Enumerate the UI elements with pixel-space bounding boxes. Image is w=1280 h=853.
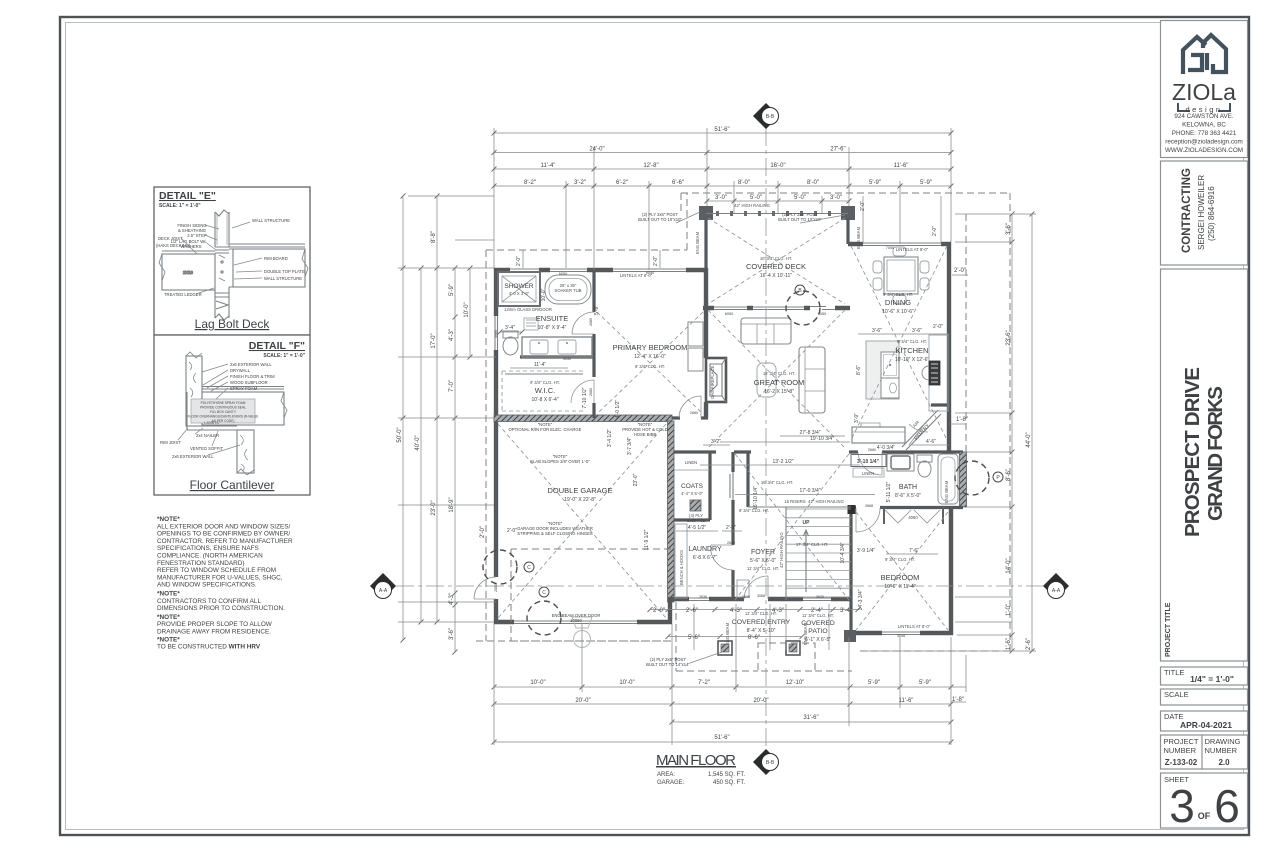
svg-text:4060: 4060 [908, 515, 918, 520]
svg-text:10'-0": 10'-0" [530, 680, 545, 686]
svg-text:(HAKS DECKING): (HAKS DECKING) [156, 243, 191, 248]
svg-text:GARAGE:: GARAGE: [657, 780, 685, 786]
svg-text:2630: 2630 [727, 541, 735, 545]
svg-text:NUMBER: NUMBER [1205, 746, 1238, 755]
svg-text:A-A: A-A [379, 588, 388, 594]
svg-text:DIMENSIONS PRIOR TO CONSTRUCTI: DIMENSIONS PRIOR TO CONSTRUCTION. [157, 605, 285, 612]
svg-text:5'-9": 5'-9" [868, 680, 880, 686]
svg-text:2680: 2680 [589, 318, 593, 326]
svg-text:12mm GLASS DR/DOOR: 12mm GLASS DR/DOOR [504, 307, 552, 312]
svg-text:DRAWING: DRAWING [1205, 737, 1241, 746]
svg-text:FILL BOX CAVITY: FILL BOX CAVITY [210, 410, 237, 414]
svg-text:10'-6" X 11'-4": 10'-6" X 11'-4" [884, 584, 915, 590]
svg-text:LAUNDRY: LAUNDRY [688, 546, 722, 553]
svg-text:3046: 3046 [897, 634, 905, 638]
svg-text:DOUBLE TOP PLATE: DOUBLE TOP PLATE [264, 269, 305, 274]
svg-text:NUMBER: NUMBER [1164, 746, 1197, 755]
svg-text:SPECIFICATIONS, ENSURE NAFS: SPECIFICATIONS, ENSURE NAFS [157, 545, 259, 552]
svg-text:BUILT OUT TO 10"x10": BUILT OUT TO 10"x10" [638, 217, 682, 222]
svg-text:*NOTE*: *NOTE* [157, 516, 180, 523]
svg-text:BATH: BATH [899, 484, 917, 491]
svg-text:10'-8 X 6'-4": 10'-8 X 6'-4" [531, 397, 558, 403]
svg-text:2X10: 2X10 [183, 270, 193, 275]
svg-text:5'-0": 5'-0" [794, 195, 806, 201]
svg-text:COVERED: COVERED [801, 620, 835, 627]
svg-text:15 RISERS: 15 RISERS [784, 499, 806, 504]
svg-text:FLOOR OVERHANGS/CANTILEVERS (R: FLOOR OVERHANGS/CANTILEVERS (R-VALUE [188, 415, 259, 419]
svg-text:6'-2": 6'-2" [616, 180, 628, 186]
svg-text:10'-4 3/4": 10'-4 3/4" [840, 542, 846, 563]
svg-text:BENCH & HOOKS: BENCH & HOOKS [679, 550, 684, 585]
svg-text:LINTELS AT 8'-0": LINTELS AT 8'-0" [896, 247, 929, 252]
svg-text:5050: 5050 [563, 357, 571, 361]
svg-text:ZIOLa: ZIOLa [1172, 79, 1236, 105]
svg-text:Lag Bolt Deck: Lag Bolt Deck [195, 317, 271, 331]
svg-text:8'-2": 8'-2" [524, 180, 536, 186]
svg-text:9' 3/4" CLG. HT.: 9' 3/4" CLG. HT. [897, 339, 927, 344]
svg-text:2'-0": 2'-0" [860, 201, 866, 211]
svg-text:5'-6" X 6'-0": 5'-6" X 6'-0" [750, 558, 776, 564]
svg-text:BUILT OUT TO 14"x14": BUILT OUT TO 14"x14" [646, 662, 690, 667]
svg-text:2630: 2630 [742, 595, 750, 599]
svg-text:17'-0 3/4": 17'-0 3/4" [799, 488, 820, 494]
svg-text:12'-4" X 16'-0": 12'-4" X 16'-0" [634, 354, 666, 360]
svg-text:OPENINGS TO BE CONFIRMED BY OW: OPENINGS TO BE CONFIRMED BY OWNER/ [157, 531, 290, 538]
svg-text:16' 3/4" CLG. HT.: 16' 3/4" CLG. HT. [763, 371, 795, 376]
svg-text:9' 3/4" CLG. HT.: 9' 3/4" CLG. HT. [885, 557, 915, 562]
svg-text:5'-9": 5'-9" [594, 305, 600, 315]
svg-text:RIM JOIST: RIM JOIST [160, 440, 181, 445]
svg-text:*NOTE*: *NOTE* [157, 614, 180, 621]
svg-text:7050: 7050 [886, 246, 894, 250]
svg-text:A-A: A-A [1052, 588, 1061, 594]
svg-text:10'-10" X 12'-6": 10'-10" X 12'-6" [895, 357, 930, 363]
svg-text:COVERED DECK: COVERED DECK [746, 262, 806, 271]
svg-text:17'-0": 17'-0" [431, 333, 437, 348]
svg-text:2x10 PSL: 2x10 PSL [687, 518, 706, 523]
svg-text:2'-6": 2'-6" [686, 608, 698, 614]
svg-text:40'-0": 40'-0" [415, 435, 421, 450]
svg-text:HOSE BIBB: HOSE BIBB [634, 432, 657, 437]
svg-text:4'-0 X 3'-6": 4'-0 X 3'-6" [509, 291, 530, 296]
svg-text:PROSPECT DRIVE: PROSPECT DRIVE [1181, 367, 1204, 537]
svg-text:42" HIGH RAILING: 42" HIGH RAILING [734, 203, 770, 208]
svg-text:AREA:: AREA: [657, 772, 675, 778]
svg-text:3068: 3068 [757, 594, 765, 598]
svg-text:19'-10 3/4": 19'-10 3/4" [810, 436, 834, 442]
svg-text:5'-9": 5'-9" [869, 180, 881, 186]
svg-text:14'-0": 14'-0" [1006, 558, 1012, 573]
svg-text:PRIMARY BEDROOM: PRIMARY BEDROOM [613, 343, 688, 352]
svg-text:3'-10 1/4": 3'-10 1/4" [857, 459, 880, 465]
svg-text:9' 3/4" CLG. HT.: 9' 3/4" CLG. HT. [635, 364, 665, 369]
svg-text:SCALE: SCALE [1164, 690, 1189, 699]
svg-text:6050: 6050 [725, 312, 733, 316]
svg-text:1'-8": 1'-8" [952, 697, 964, 703]
svg-text:51'-6": 51'-6" [714, 127, 729, 133]
svg-text:1/4" = 1'-0": 1/4" = 1'-0" [1190, 674, 1234, 684]
svg-text:1,545 SQ. FT.: 1,545 SQ. FT. [708, 772, 745, 778]
svg-text:GREAT ROOM: GREAT ROOM [754, 378, 805, 387]
svg-text:4'-0 1/2": 4'-0 1/2" [615, 400, 621, 419]
svg-text:1'-0": 1'-0" [1006, 604, 1012, 616]
svg-text:10'-8" X 9'-4": 10'-8" X 9'-4" [538, 325, 567, 331]
svg-text:COVERED ENTRY: COVERED ENTRY [732, 619, 791, 626]
svg-text:4'-6": 4'-6" [926, 439, 936, 445]
svg-text:2x6 EXTERIOR WALL: 2x6 EXTERIOR WALL [172, 454, 214, 459]
svg-text:2'-0": 2'-0" [954, 268, 966, 274]
svg-text:APR-04-2021: APR-04-2021 [1180, 720, 1232, 730]
svg-text:2'-6": 2'-6" [1026, 638, 1032, 650]
svg-text:DRAINAGE AWAY FROM RESIDENCE.: DRAINAGE AWAY FROM RESIDENCE. [157, 629, 271, 636]
svg-text:3'-4": 3'-4" [840, 608, 852, 614]
svg-text:Z-133-02: Z-133-02 [1165, 758, 1198, 767]
svg-text:3'-0": 3'-0" [715, 195, 727, 201]
svg-text:BUILT OUT TO 10"x10": BUILT OUT TO 10"x10" [778, 217, 822, 222]
svg-text:8'-6": 8'-6" [748, 635, 760, 641]
svg-text:SERGEI HOWEILER: SERGEI HOWEILER [1197, 175, 1206, 250]
svg-text:SPRAY FOAM: SPRAY FOAM [230, 386, 258, 391]
svg-text:2636: 2636 [699, 595, 707, 599]
svg-text:VENTED SOFFIT: VENTED SOFFIT [190, 446, 223, 451]
svg-text:6'-6": 6'-6" [672, 180, 684, 186]
svg-text:SOAKER TUB: SOAKER TUB [555, 288, 582, 293]
svg-text:4'-3": 4'-3" [730, 608, 742, 614]
svg-text:6'-1" X 6'-5": 6'-1" X 6'-5" [805, 637, 831, 643]
svg-text:1'-6": 1'-6" [1006, 638, 1012, 650]
svg-text:reception@zioladesign.com: reception@zioladesign.com [1165, 139, 1242, 146]
svg-text:11' 3/4" CLG. HT.: 11' 3/4" CLG. HT. [747, 566, 779, 571]
svg-text:2680: 2680 [690, 411, 698, 415]
svg-text:2'-0": 2'-0" [933, 324, 943, 330]
svg-text:3'-6": 3'-6" [872, 328, 882, 334]
svg-text:10'-0": 10'-0" [619, 680, 634, 686]
svg-text:SLAB SLOPES 1/8" OVER 1'-0": SLAB SLOPES 1/8" OVER 1'-0" [530, 459, 590, 464]
svg-text:CONTRACTORS TO CONFIRM ALL: CONTRACTORS TO CONFIRM ALL [157, 598, 261, 605]
svg-text:(250) 864-6916: (250) 864-6916 [1207, 186, 1216, 241]
svg-text:TO BE CONSTRUCTED WITH HRV: TO BE CONSTRUCTED WITH HRV [157, 644, 261, 651]
svg-text:SHOWER: SHOWER [504, 283, 534, 290]
svg-text:10'-6" X 10'-6": 10'-6" X 10'-6" [882, 309, 914, 315]
svg-text:FOYER: FOYER [751, 549, 775, 556]
svg-text:2'-0": 2'-0" [507, 528, 517, 534]
svg-text:ENG BEAM: ENG BEAM [695, 231, 700, 254]
svg-text:LINTELS AT 8'-0": LINTELS AT 8'-0" [898, 624, 931, 629]
svg-text:2630: 2630 [816, 595, 824, 599]
svg-text:4'-4" X 5'-0": 4'-4" X 5'-0" [681, 491, 703, 496]
svg-text:ENG BEAM: ENG BEAM [725, 622, 730, 645]
svg-text:ENG BEAM: ENG BEAM [856, 226, 861, 249]
svg-text:19'-0" X 22'-8": 19'-0" X 22'-8" [564, 497, 596, 503]
svg-text:W.I.C.: W.I.C. [535, 386, 555, 395]
svg-text:8'-0": 8'-0" [807, 180, 819, 186]
svg-text:8'-6": 8'-6" [1006, 469, 1012, 481]
svg-text:9' 3/4" CLG. HT.: 9' 3/4" CLG. HT. [739, 508, 769, 513]
svg-text:2'-0": 2'-0" [480, 526, 486, 538]
svg-text:3'-0": 3'-0" [830, 195, 842, 201]
svg-text:2880: 2880 [494, 584, 498, 592]
svg-text:*NOTE*: *NOTE* [157, 636, 180, 643]
svg-text:23'-0": 23'-0" [633, 473, 639, 486]
svg-text:20'-0": 20'-0" [753, 698, 768, 704]
svg-text:16'-4 X 10'-11": 16'-4 X 10'-11" [760, 273, 792, 279]
svg-text:42" HIGH RAILING: 42" HIGH RAILING [808, 499, 844, 504]
svg-text:6: 6 [1214, 780, 1240, 832]
svg-text:5'-9": 5'-9" [920, 180, 932, 186]
svg-text:WALL STRUCTURE: WALL STRUCTURE [264, 276, 302, 281]
svg-text:12'-8": 12'-8" [643, 163, 658, 169]
svg-text:WWW.ZIOLADESIGN.COM: WWW.ZIOLADESIGN.COM [1165, 147, 1243, 154]
svg-text:51'-6": 51'-6" [714, 735, 729, 741]
svg-text:11'-9 1/2": 11'-9 1/2" [644, 529, 650, 550]
svg-text:*NOTE*: *NOTE* [157, 591, 180, 598]
svg-text:4'-5 1/2": 4'-5 1/2" [688, 525, 707, 531]
svg-text:10' 3/4" CLG. HT.: 10' 3/4" CLG. HT. [760, 256, 792, 261]
svg-text:7'-6": 7'-6" [909, 548, 919, 554]
svg-text:CONTRACTING: CONTRACTING [1181, 168, 1193, 253]
svg-text:B-B: B-B [766, 760, 775, 766]
svg-text:13'-2 1/2": 13'-2 1/2" [772, 459, 793, 465]
svg-text:2'-0": 2'-0" [932, 226, 938, 236]
svg-text:8'-0": 8'-0" [738, 180, 750, 186]
svg-text:STRIPPING & SELF CLOSING HINGE: STRIPPING & SELF CLOSING HINGES [517, 531, 593, 536]
svg-text:7'-0": 7'-0" [449, 380, 455, 392]
svg-text:TITLE: TITLE [1164, 668, 1184, 677]
svg-text:20'-0": 20'-0" [575, 698, 590, 704]
svg-text:2.5" STEP: 2.5" STEP [187, 233, 207, 238]
svg-text:PROVIDE PROPER SLOPE TO ALLOW: PROVIDE PROPER SLOPE TO ALLOW [157, 621, 273, 628]
svg-text:WALL STRUCTURE: WALL STRUCTURE [252, 218, 290, 223]
svg-text:2'-5": 2'-5" [726, 525, 736, 531]
svg-text:8'-6" X 5'-0": 8'-6" X 5'-0" [895, 493, 921, 499]
svg-text:3'-7 3/4": 3'-7 3/4" [627, 437, 633, 456]
svg-text:GRAND FORKS: GRAND FORKS [1204, 386, 1227, 521]
svg-text:RIM BOARD: RIM BOARD [264, 256, 288, 261]
svg-text:GAS FIREPLACE: GAS FIREPLACE [710, 366, 715, 399]
svg-text:6'-8 X 6'-7": 6'-8 X 6'-7" [693, 555, 717, 561]
svg-text:I-JOISTS: I-JOISTS [204, 421, 219, 425]
svg-text:27'-6": 27'-6" [830, 147, 845, 153]
svg-text:11'-6": 11'-6" [899, 698, 914, 704]
svg-text:3'-6": 3'-6" [912, 328, 922, 334]
svg-text:450 SQ. FT.: 450 SQ. FT. [713, 780, 745, 786]
svg-text:8'-8": 8'-8" [431, 231, 437, 243]
svg-text:3'-6": 3'-6" [449, 628, 455, 640]
svg-text:3'-2": 3'-2" [574, 180, 586, 186]
svg-text:18'-9": 18'-9" [449, 497, 455, 512]
svg-text:AND WINDOW SPECIFICATIONS.: AND WINDOW SPECIFICATIONS. [157, 582, 257, 589]
svg-text:2'-0": 2'-0" [653, 256, 659, 266]
svg-text:DRYWALL: DRYWALL [230, 368, 251, 373]
svg-text:LINEN: LINEN [685, 460, 697, 465]
svg-text:REFER TO WINDOW SCHEDULE FROM: REFER TO WINDOW SCHEDULE FROM [157, 567, 276, 574]
svg-text:ENG BEAM: ENG BEAM [944, 480, 949, 503]
svg-text:5'-9": 5'-9" [449, 284, 455, 296]
svg-text:POLYETHYENE SPRAY FOAM: POLYETHYENE SPRAY FOAM [201, 401, 246, 405]
svg-text:B-B: B-B [766, 114, 775, 120]
svg-text:2'-0": 2'-0" [516, 256, 522, 266]
svg-text:7'-10 1/2": 7'-10 1/2" [582, 387, 588, 408]
svg-text:1'-8": 1'-8" [956, 417, 968, 423]
svg-text:TREATED LEDGER: TREATED LEDGER [164, 292, 202, 297]
svg-text:BEDROOM: BEDROOM [881, 573, 920, 582]
svg-text:2'-0": 2'-0" [653, 608, 665, 614]
svg-text:9' 3/4" CLG. HT.: 9' 3/4" CLG. HT. [883, 292, 913, 297]
svg-text:Floor Cantilever: Floor Cantilever [190, 478, 275, 492]
svg-text:5'-6": 5'-6" [688, 635, 700, 641]
svg-text:31'-6": 31'-6" [803, 715, 818, 721]
svg-text:17' 3/4" CLG. HT.: 17' 3/4" CLG. HT. [796, 542, 828, 547]
svg-text:ENSUITE: ENSUITE [536, 314, 569, 323]
svg-text:44'-0": 44'-0" [1026, 432, 1032, 447]
svg-text:16'-10 1/4": 16'-10 1/4" [753, 486, 759, 510]
svg-text:16'-2 X 15'-8": 16'-2 X 15'-8" [764, 389, 794, 395]
svg-text:2668: 2668 [865, 504, 873, 508]
svg-text:4'-0 3/4": 4'-0 3/4" [877, 445, 896, 451]
svg-text:3'-2": 3'-2" [711, 439, 721, 445]
svg-text:924 CAWSTON AVE.: 924 CAWSTON AVE. [1174, 113, 1234, 120]
svg-text:10'-0": 10'-0" [464, 302, 470, 317]
svg-text:12'-10": 12'-10" [786, 680, 805, 686]
svg-text:PROJECT: PROJECT [1164, 737, 1199, 746]
svg-text:FENESTRATION STANDARD): FENESTRATION STANDARD) [157, 560, 244, 567]
svg-text:5'-11 1/2": 5'-11 1/2" [886, 481, 892, 502]
svg-text:11'-4": 11'-4" [534, 362, 547, 368]
svg-text:PATIO: PATIO [808, 628, 827, 635]
svg-text:3'-9 1/4": 3'-9 1/4" [857, 548, 876, 554]
svg-text:OPTIONAL R/IN FOR ELEC. CHARGE: OPTIONAL R/IN FOR ELEC. CHARGE [509, 427, 582, 432]
svg-text:2.0: 2.0 [1218, 758, 1230, 767]
svg-text:11'-4": 11'-4" [541, 163, 556, 169]
svg-text:COATS: COATS [681, 483, 704, 490]
svg-text:C: C [527, 565, 531, 571]
svg-text:23'-0": 23'-0" [431, 500, 437, 515]
svg-text:10'-0": 10'-0" [541, 288, 547, 301]
svg-text:23'-6": 23'-6" [1006, 330, 1012, 345]
svg-text:7'-2": 7'-2" [698, 680, 710, 686]
svg-text:SCALE: 1" = 1'-0": SCALE: 1" = 1'-0" [263, 353, 305, 359]
svg-text:DINING: DINING [885, 298, 911, 307]
svg-text:2680: 2680 [589, 388, 593, 396]
svg-text:4'-3": 4'-3" [449, 593, 455, 605]
svg-text:14'-3 3/4": 14'-3 3/4" [858, 589, 864, 610]
svg-text:24'-0": 24'-0" [589, 147, 604, 153]
svg-text:LINEN: LINEN [862, 471, 874, 476]
svg-text:COMPLIANCE. (NORTH AMERICAN: COMPLIANCE. (NORTH AMERICAN [157, 553, 263, 560]
svg-text:16'-0": 16'-0" [770, 163, 785, 169]
svg-text:OF: OF [1198, 811, 1211, 821]
svg-text:KELOWNA, BC: KELOWNA, BC [1182, 122, 1226, 129]
svg-text:KITCHEN: KITCHEN [896, 346, 929, 355]
svg-text:11' 3/4" CLG. HT.: 11' 3/4" CLG. HT. [802, 613, 834, 618]
svg-text:6050: 6050 [559, 272, 567, 276]
svg-text:2680: 2680 [868, 448, 876, 452]
svg-text:DECK JOIST: DECK JOIST [158, 236, 183, 241]
svg-text:9' 3/4" CLG. HT.: 9' 3/4" CLG. HT. [530, 380, 560, 385]
svg-text:3: 3 [1169, 780, 1195, 832]
svg-text:C: C [542, 590, 546, 596]
svg-text:5'-9": 5'-9" [919, 680, 931, 686]
svg-text:CONTRACTOR. REFER TO MANUFACTU: CONTRACTOR. REFER TO MANUFACTURER [157, 538, 293, 545]
svg-text:FINISH FLOOR & TRIM: FINISH FLOOR & TRIM [230, 374, 275, 379]
svg-text:16' 3/4" CLG. HT.: 16' 3/4" CLG. HT. [761, 480, 793, 485]
svg-text:SCALE: 1" = 1'-0": SCALE: 1" = 1'-0" [159, 203, 201, 209]
svg-text:11'-6": 11'-6" [894, 163, 909, 169]
svg-text:DETAIL "E": DETAIL "E" [159, 190, 216, 202]
svg-text:UP: UP [803, 520, 811, 526]
svg-text:8'-4" X 5'-10": 8'-4" X 5'-10" [747, 628, 776, 634]
svg-text:2x4 NAILER: 2x4 NAILER [196, 433, 219, 438]
svg-text:MAIN FLOOR: MAIN FLOOR [656, 752, 736, 769]
svg-text:MANUFACTURER FOR U-VALUES, SHG: MANUFACTURER FOR U-VALUES, SHGC, [157, 574, 283, 581]
svg-text:3'-4 1/2": 3'-4 1/2" [607, 429, 613, 448]
svg-text:6050: 6050 [818, 312, 826, 316]
svg-text:PHONE: 778 363 4421: PHONE: 778 363 4421 [1172, 130, 1237, 137]
svg-text:DETAIL "F": DETAIL "F" [249, 340, 305, 352]
svg-text:42" HIGH RAILING: 42" HIGH RAILING [779, 532, 784, 568]
svg-text:PROVIDE CONTINUOUS SEAL: PROVIDE CONTINUOUS SEAL [200, 406, 246, 410]
svg-text:11' 3/4" CLG. HT.: 11' 3/4" CLG. HT. [745, 611, 777, 616]
svg-text:8'-6": 8'-6" [856, 365, 862, 375]
svg-text:PROJECT TITLE: PROJECT TITLE [1165, 602, 1172, 657]
svg-text:LINTELS AT 8'-0": LINTELS AT 8'-0" [620, 273, 653, 278]
svg-text:10060: 10060 [570, 618, 582, 623]
svg-text:2x6 EXTERIOR WALL: 2x6 EXTERIOR WALL [230, 362, 272, 367]
svg-text:3'-6": 3'-6" [1006, 223, 1012, 235]
svg-text:5'-0": 5'-0" [750, 195, 762, 201]
svg-text:3'-9": 3'-9" [854, 413, 860, 423]
svg-text:50'-0": 50'-0" [397, 427, 403, 442]
svg-text:WOOD SUBFLOOR: WOOD SUBFLOOR [230, 380, 268, 385]
svg-text:ALL EXTERIOR DOOR AND WINDOW S: ALL EXTERIOR DOOR AND WINDOW SIZES/ [157, 523, 290, 530]
svg-text:4'-3": 4'-3" [449, 329, 455, 341]
svg-text:DOUBLE GARAGE: DOUBLE GARAGE [547, 486, 612, 495]
svg-text:3'-4": 3'-4" [505, 325, 515, 331]
